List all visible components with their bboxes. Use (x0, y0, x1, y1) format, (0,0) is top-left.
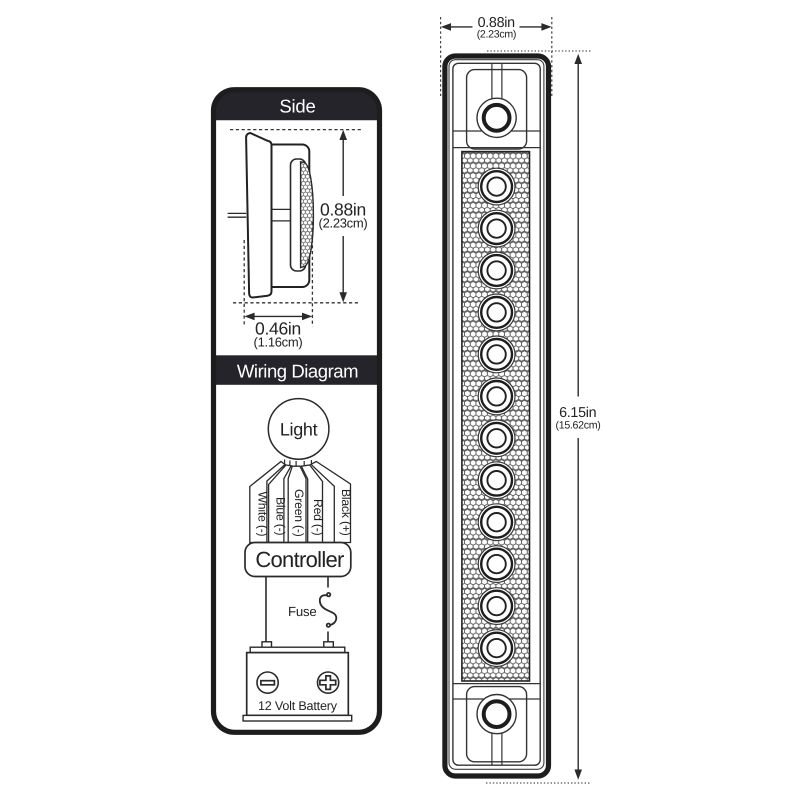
svg-text:Green (-): Green (-) (292, 489, 306, 537)
svg-text:Black (+): Black (+) (339, 489, 353, 536)
svg-text:White (-): White (-) (256, 492, 270, 537)
svg-text:(2.23cm): (2.23cm) (477, 28, 516, 40)
svg-text:Light: Light (280, 419, 318, 439)
svg-text:Side: Side (279, 96, 315, 117)
svg-text:Blue (-): Blue (-) (273, 497, 287, 535)
svg-text:Wiring Diagram: Wiring Diagram (237, 360, 358, 381)
svg-text:Red (-): Red (-) (311, 499, 325, 536)
svg-text:12 Volt Battery: 12 Volt Battery (258, 699, 338, 713)
svg-text:Controller: Controller (255, 547, 344, 572)
svg-text:(15.62cm): (15.62cm) (556, 419, 601, 431)
svg-text:(2.23cm): (2.23cm) (319, 216, 368, 231)
svg-text:Fuse: Fuse (288, 604, 317, 619)
svg-text:(1.16cm): (1.16cm) (254, 335, 303, 350)
